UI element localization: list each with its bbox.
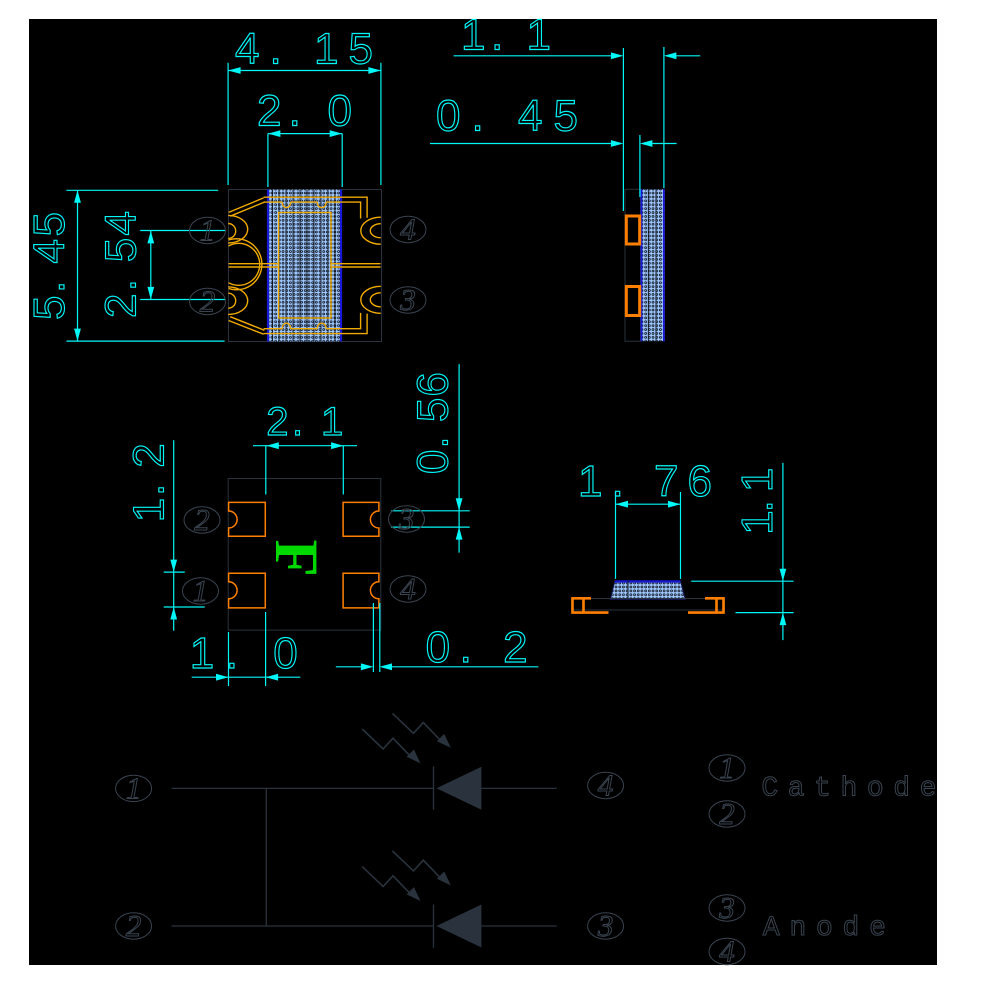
svg-text:3: 3 — [597, 908, 614, 943]
svg-text:2: 2 — [200, 284, 216, 319]
svg-text:1. 2: 1. 2 — [125, 443, 174, 522]
svg-text:4: 4 — [400, 571, 416, 606]
svg-text:4: 4 — [400, 212, 416, 247]
svg-text:1: 1 — [193, 573, 209, 608]
svg-text:4: 4 — [719, 934, 735, 969]
svg-text:2: 2 — [126, 908, 142, 943]
svg-text:1: 1 — [200, 213, 216, 248]
svg-text:2: 2 — [719, 796, 735, 831]
svg-text:3: 3 — [398, 501, 415, 536]
svg-text:3: 3 — [718, 890, 735, 925]
svg-text:1. 1: 1. 1 — [733, 468, 782, 535]
svg-text:F: F — [262, 540, 329, 577]
svg-text:4: 4 — [598, 768, 614, 803]
svg-text:3: 3 — [399, 282, 416, 317]
svg-text:2: 2 — [194, 502, 210, 537]
svg-text:1: 1 — [719, 750, 735, 785]
svg-text:1: 1 — [126, 770, 142, 805]
